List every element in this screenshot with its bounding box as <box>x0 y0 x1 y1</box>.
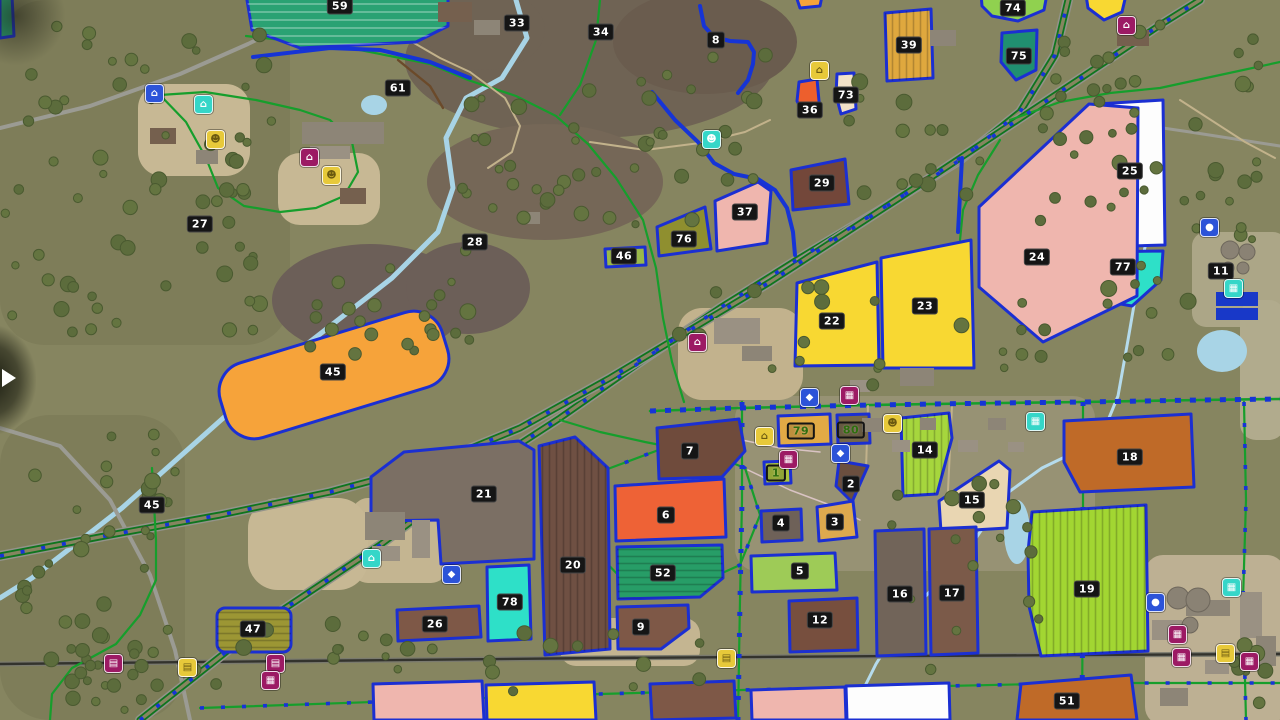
field-label-17: 17 <box>939 585 965 602</box>
production-icon[interactable]: ▦ <box>1168 625 1187 644</box>
production-icon[interactable]: ▦ <box>779 450 798 469</box>
field-label-51: 51 <box>1054 693 1080 710</box>
field-label-23: 23 <box>912 298 938 315</box>
worker-icon[interactable]: ☻ <box>206 130 225 149</box>
shop-icon[interactable]: ⌂ <box>755 427 774 446</box>
field-label-80: 80 <box>837 422 865 439</box>
field-label-33: 33 <box>504 15 530 32</box>
field-label-47: 47 <box>240 621 266 638</box>
farm-store-icon[interactable]: ⌂ <box>145 84 164 103</box>
field-label-14: 14 <box>912 442 938 459</box>
sell-point-icon[interactable]: ⌂ <box>194 95 213 114</box>
field-label-34: 34 <box>588 24 614 41</box>
worker-icon[interactable]: ☻ <box>322 166 341 185</box>
workshop-icon[interactable]: ◆ <box>831 444 850 463</box>
contract-icon[interactable]: ☻ <box>702 130 721 149</box>
factory-icon[interactable]: ▦ <box>1222 578 1241 597</box>
field-label-21: 21 <box>471 486 497 503</box>
map-overlay: 5936733974752577242223377629464547267821… <box>0 0 1280 720</box>
field-label-74: 74 <box>1000 0 1026 17</box>
field-label-39: 39 <box>896 37 922 54</box>
field-label-52: 52 <box>650 565 676 582</box>
field-label-6: 6 <box>657 507 675 524</box>
field-label-12: 12 <box>807 612 833 629</box>
field-label-45: 45 <box>320 364 346 381</box>
workshop-icon[interactable]: ◆ <box>800 388 819 407</box>
field-label-11: 11 <box>1208 263 1234 280</box>
bus-stop-icon[interactable]: ▤ <box>717 649 736 668</box>
field-label-25: 25 <box>1117 163 1143 180</box>
field-label-8: 8 <box>707 32 725 49</box>
field-label-2: 2 <box>842 476 860 493</box>
animal-dealer-icon[interactable]: ⌂ <box>300 148 319 167</box>
worker-icon[interactable]: ☻ <box>883 414 902 433</box>
field-label-77: 77 <box>1110 259 1136 276</box>
field-label-78: 78 <box>497 594 523 611</box>
train-icon[interactable]: ▤ <box>104 654 123 673</box>
factory-icon[interactable]: ▦ <box>1026 412 1045 431</box>
field-label-76: 76 <box>671 231 697 248</box>
field-label-16: 16 <box>887 586 913 603</box>
production-icon[interactable]: ▦ <box>261 671 280 690</box>
field-label-28: 28 <box>462 234 488 251</box>
map-edge-arrow-icon <box>2 369 16 387</box>
field-label-27: 27 <box>187 216 213 233</box>
field-label-3: 3 <box>826 514 844 531</box>
production-icon[interactable]: ▦ <box>840 386 859 405</box>
workshop-icon[interactable]: ◆ <box>442 565 461 584</box>
game-map[interactable]: 5936733974752577242223377629464547267821… <box>0 0 1280 720</box>
field-label-36: 36 <box>797 102 823 119</box>
fuel-icon[interactable]: ● <box>1200 218 1219 237</box>
field-label-20: 20 <box>560 557 586 574</box>
production-icon[interactable]: ▦ <box>1172 648 1191 667</box>
field-label-61: 61 <box>385 80 411 97</box>
field-label-9: 9 <box>632 619 650 636</box>
field-label-73: 73 <box>833 87 859 104</box>
factory-icon[interactable]: ▦ <box>1224 279 1243 298</box>
bus-stop-icon[interactable]: ▤ <box>178 658 197 677</box>
field-label-19: 19 <box>1074 581 1100 598</box>
shop-icon[interactable]: ⌂ <box>810 61 829 80</box>
field-label-59: 59 <box>327 0 353 15</box>
fuel-icon[interactable]: ● <box>1146 593 1165 612</box>
field-label-79: 79 <box>787 423 815 440</box>
field-label-75: 75 <box>1006 48 1032 65</box>
field-label-46: 46 <box>611 248 637 265</box>
field-label-26: 26 <box>422 616 448 633</box>
field-label-7: 7 <box>681 443 699 460</box>
field-label-45: 45 <box>139 497 165 514</box>
field-label-5: 5 <box>791 563 809 580</box>
field-label-18: 18 <box>1117 449 1143 466</box>
field-label-37: 37 <box>732 204 758 221</box>
production-icon[interactable]: ▦ <box>1240 652 1259 671</box>
production-icon[interactable]: ⌂ <box>1117 16 1136 35</box>
field-label-22: 22 <box>819 313 845 330</box>
field-label-29: 29 <box>809 175 835 192</box>
sell-point-icon[interactable]: ⌂ <box>362 549 381 568</box>
field-label-4: 4 <box>772 515 790 532</box>
bus-stop-icon[interactable]: ▤ <box>1216 644 1235 663</box>
field-label-15: 15 <box>959 492 985 509</box>
vehicle-dealer-icon[interactable]: ⌂ <box>688 333 707 352</box>
field-label-24: 24 <box>1024 249 1050 266</box>
